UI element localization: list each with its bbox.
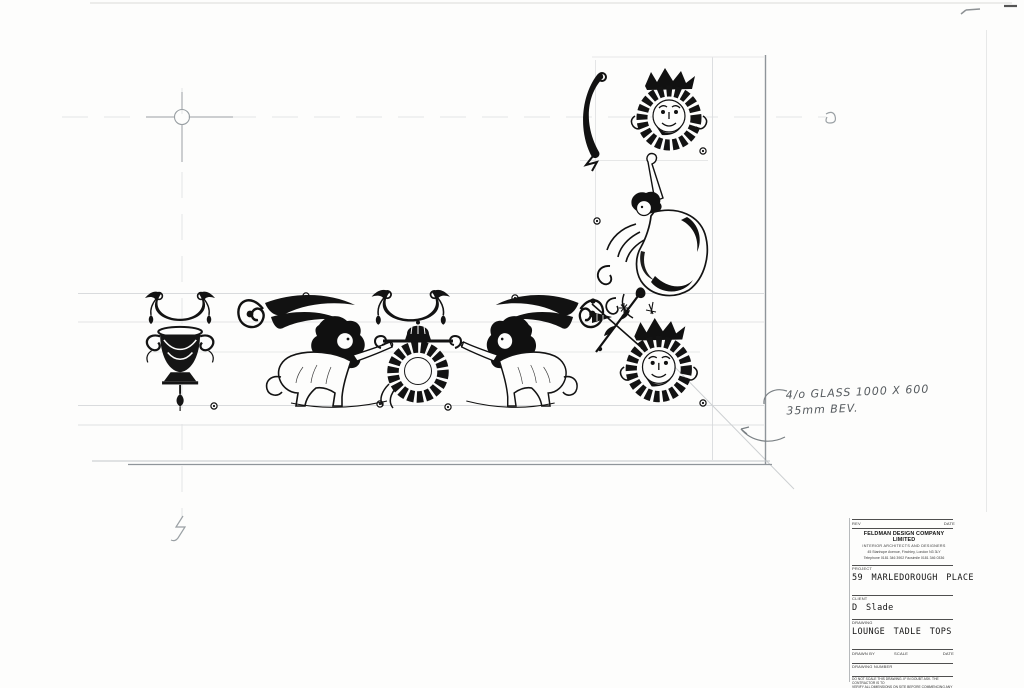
drawn-by-label: DRAWN BY (852, 651, 894, 656)
rev-label: REV (852, 521, 861, 526)
client-label: CLIENT (852, 596, 956, 601)
grotesque-mask-medallion-top (631, 68, 706, 145)
project-value: 59 MARLEDOROUGH PLACE (852, 573, 956, 583)
register-mark (146, 92, 233, 162)
pen-tick-mark (961, 9, 980, 14)
drawing-sheet: 4/o GLASS 1000 X 600 35mm BEV. REV DATE … (0, 0, 1024, 688)
title-block-left-border (849, 518, 850, 682)
drawing-label: DRAWING (852, 620, 956, 625)
ornate-urn (147, 327, 213, 411)
scan-artifacts (90, 3, 1017, 512)
grotesque-mask-medallion-corner (620, 318, 697, 397)
project-label: PROJECT (852, 566, 956, 571)
company-name: FELDMAN DESIGN COMPANY LIMITED (852, 531, 956, 543)
drawing-number-label: DRAWING NUMBER (852, 664, 956, 669)
swag-drapery-centre (372, 290, 450, 325)
break-squiggle-bottom (171, 516, 185, 541)
title-block: REV DATE FELDMAN DESIGN COMPANY LIMITED … (849, 514, 956, 688)
laurel-wreath-crown-medallion (375, 321, 461, 409)
winged-sphinx-facing-left (461, 295, 603, 407)
crossed-torch-floral-spray (590, 287, 645, 352)
swag-drapery-left (145, 292, 215, 324)
scale-label: SCALE (894, 651, 940, 656)
ornaments (145, 68, 707, 411)
date-label: DATE (944, 521, 955, 526)
company-phone: Telephone 0181 346 3902 Facsimile 0181 3… (852, 556, 956, 560)
company-address: 45 Stanhope Avenue, Finchley, London N3 … (852, 550, 956, 554)
drapery-scroll-top (583, 73, 606, 171)
guide-lines (62, 57, 826, 518)
disclaimer-text: DO NOT SCALE THIS DRAWING. IF IN DOUBT A… (852, 677, 956, 688)
client-value: D Slade (852, 603, 956, 613)
date-label-2: DATE (940, 651, 956, 656)
drawing-value: LOUNGE TADLE TOPS (852, 627, 956, 637)
break-squiggle-right (826, 112, 835, 123)
rule (852, 528, 953, 529)
note-leader (741, 390, 787, 441)
company-subtitle: INTERIOR ARCHITECTS AND DESIGNERS (852, 544, 956, 548)
winged-sphinx-facing-right (238, 295, 392, 407)
